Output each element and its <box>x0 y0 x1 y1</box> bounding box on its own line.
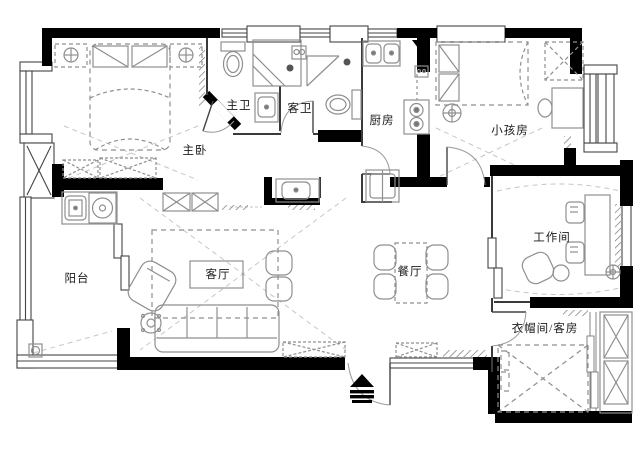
label-kids-room: 小孩房 <box>491 122 529 138</box>
tv-wall-cabinets <box>163 193 218 211</box>
entry-shoe-cabinets <box>283 342 437 357</box>
wardrobe-boxes <box>600 312 632 413</box>
window-top-3 <box>368 29 397 37</box>
master-bed <box>90 44 170 150</box>
kids-desk <box>538 88 583 128</box>
cloakroom-sliding-door <box>587 312 598 411</box>
kids-bed <box>436 42 528 105</box>
windows <box>17 26 631 368</box>
flower-side-table-icon <box>141 313 161 333</box>
sofa <box>155 305 279 352</box>
label-master-bedroom: 主卧 <box>183 142 208 158</box>
kids-ceiling-lamp-icon <box>443 104 461 122</box>
living-side-chairs <box>266 251 292 301</box>
window-top-1 <box>222 29 247 37</box>
workroom-armchair <box>519 249 569 286</box>
window-bay-left <box>20 62 52 143</box>
master-bath-basin-icon <box>255 93 278 122</box>
master-bath-shower <box>253 40 301 86</box>
entrance-arrow-icon <box>350 374 374 403</box>
guest-bath-counter <box>292 46 306 59</box>
label-master-bathroom: 主卫 <box>227 97 252 113</box>
workroom-lamp-icon <box>606 265 620 279</box>
workroom-desk <box>566 195 610 275</box>
thin-walls <box>207 38 530 372</box>
nightstand-lamp-right-icon <box>170 44 202 67</box>
nightstand-lamp-left-icon <box>55 44 87 67</box>
walls <box>42 28 633 423</box>
guest-bath-toilet-icon <box>326 90 361 119</box>
floor-drains <box>287 59 351 72</box>
floor-plan-drawing <box>0 0 641 449</box>
window-bay-top-3 <box>437 26 505 42</box>
label-workroom: 工作间 <box>533 229 571 245</box>
window-top-2 <box>300 29 330 37</box>
elevator-shaft <box>24 143 54 198</box>
entry-window-wall <box>390 358 474 368</box>
label-living-room: 客厅 <box>206 266 231 282</box>
window-bay-kids-room <box>584 65 617 152</box>
label-cloakroom-guestroom: 衣帽间/客房 <box>512 320 579 336</box>
label-guest-bathroom: 客卫 <box>288 100 313 116</box>
label-dining-room: 餐厅 <box>398 263 423 279</box>
floor-plan: 主卧 主卫 客卫 厨房 小孩房 工作间 餐厅 客厅 阳台 衣帽间/客房 <box>0 0 641 449</box>
kitchen-stove-icon <box>404 74 429 134</box>
master-bath-toilet-icon <box>221 42 245 77</box>
label-balcony: 阳台 <box>65 270 90 286</box>
workroom-pocket-door <box>488 238 502 298</box>
balcony-sliding-door <box>114 224 129 290</box>
kitchen-sink-icon <box>363 41 400 66</box>
guest-bed <box>498 345 588 412</box>
window-workroom-right <box>622 203 631 268</box>
guest-bath-shower <box>307 56 339 86</box>
label-kitchen: 厨房 <box>370 112 395 128</box>
washing-machine-icon <box>89 193 116 223</box>
kids-room-door <box>447 147 485 185</box>
